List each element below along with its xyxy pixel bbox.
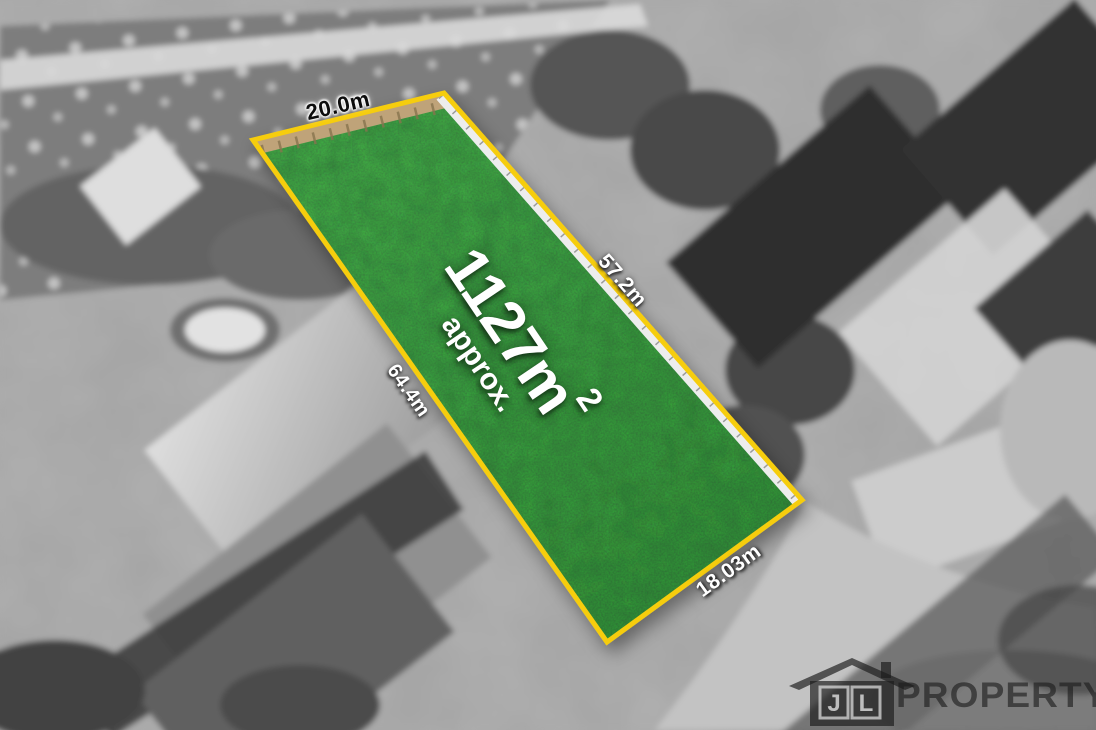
brand-logo: J L PROPERTY — [789, 650, 1096, 730]
brand-initial-l: L — [859, 690, 874, 717]
listing-aerial-image: 20.0m 57.2m 64.4m 18.03m 1127m2 approx. … — [0, 0, 1096, 730]
brand-initial-j: J — [827, 690, 840, 717]
brand-name: PROPERTY — [896, 676, 1096, 716]
